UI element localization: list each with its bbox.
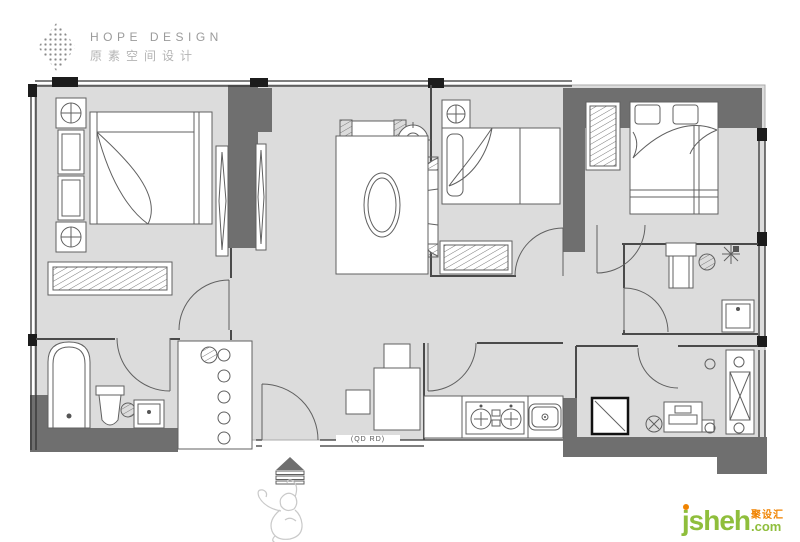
door-code-label: (QD RD) [336,435,400,445]
rug [336,136,428,274]
entry-cabinet [178,341,252,449]
figure-sketch [258,480,302,542]
floorplan-drawing [0,0,800,542]
floorplan-page: HOPE DESIGN 原素空间设计 [0,0,800,542]
watermark-stack: 聚设汇 .com [751,511,784,532]
watermark-brand: jsheh [682,510,750,532]
kitchen-furniture [424,396,563,438]
floor-drain-icon [121,403,135,417]
stool [699,254,715,270]
watermark-dot-icon [683,504,689,510]
washbasin2 [722,300,754,332]
dining-table [374,368,420,430]
stove [466,402,524,434]
site-watermark: jsheh 聚设汇 .com [682,510,784,532]
stool2 [384,344,410,368]
dressing-table [666,243,696,256]
stool1 [346,390,370,414]
watermark-domain: .com [751,521,781,532]
toilet [96,386,124,395]
